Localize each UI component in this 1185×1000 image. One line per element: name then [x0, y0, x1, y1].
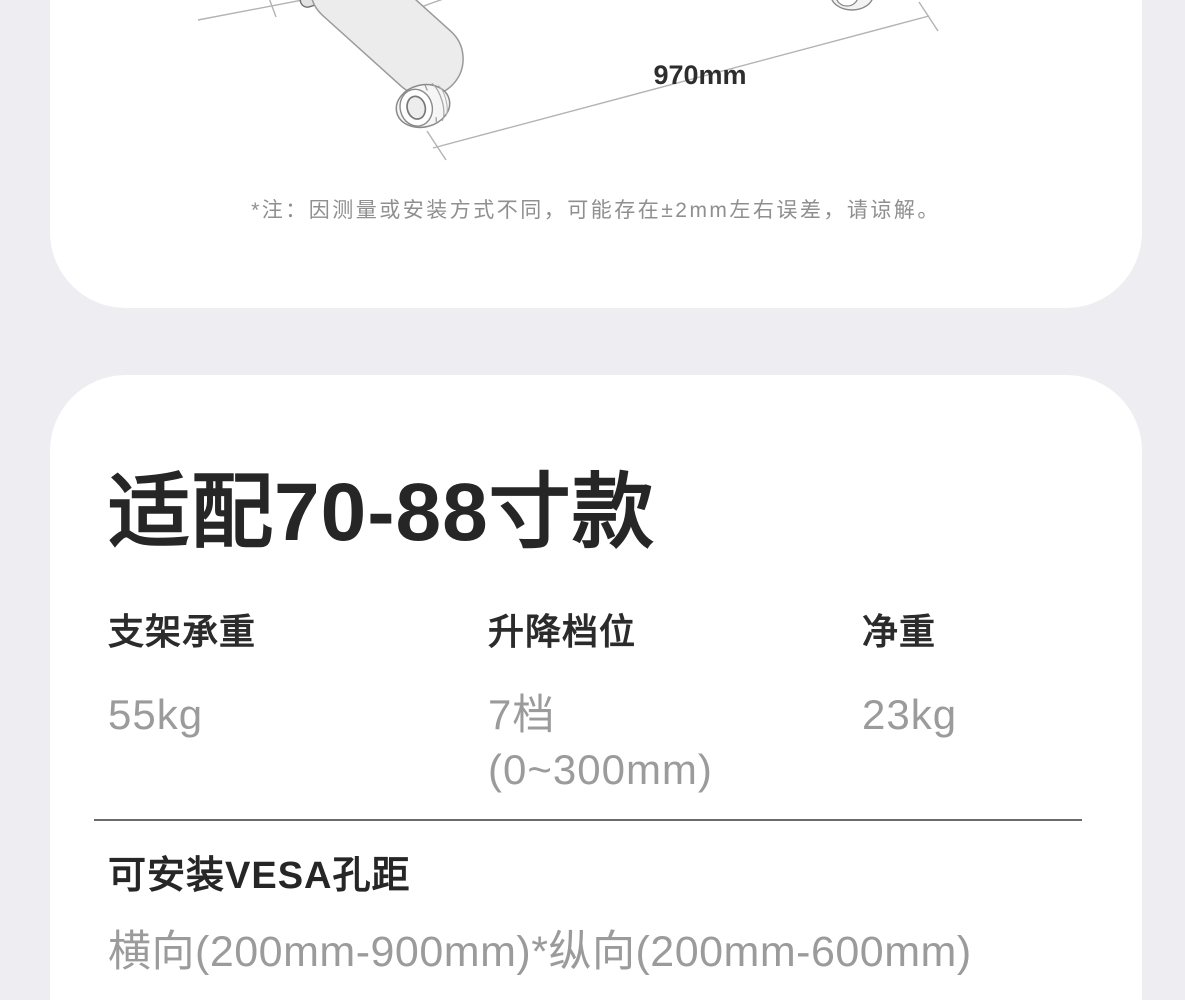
spec-label: 净重: [862, 610, 1142, 653]
vesa-section-value: 横向(200mm-900mm)*纵向(200mm-600mm): [108, 927, 1142, 979]
spec-item-net-weight: 净重 23kg: [862, 610, 1142, 797]
spec-value: 23kg: [862, 687, 1142, 742]
width-dimension-label: 970mm: [653, 60, 746, 90]
caster-wheel-partial-icon: [831, 0, 873, 10]
spec-label: 支架承重: [108, 610, 488, 653]
divider: [94, 819, 1082, 821]
product-detail-page: 970mm *注：因测量或安装方式不同，可能存在±2mm左右误差，请谅解。 适配…: [0, 0, 1185, 1000]
spec-value: 55kg: [108, 687, 488, 742]
vesa-section-label: 可安装VESA孔距: [108, 854, 1142, 900]
measurement-tolerance-note: *注：因测量或安装方式不同，可能存在±2mm左右误差，请谅解。: [50, 194, 1142, 224]
cart-dimension-illustration: 970mm: [150, 0, 1000, 170]
dimension-diagram-card: 970mm *注：因测量或安装方式不同，可能存在±2mm左右误差，请谅解。: [50, 0, 1142, 308]
spec-value: 7档 (0~300mm): [488, 687, 862, 797]
spec-item-height-levels: 升降档位 7档 (0~300mm): [488, 610, 862, 797]
spec-card: 适配70-88寸款 支架承重 55kg 升降档位 7档 (0~300mm) 净重…: [50, 375, 1142, 1000]
spec-label: 升降档位: [488, 610, 862, 653]
spec-item-load-capacity: 支架承重 55kg: [108, 610, 488, 797]
cart-leg: [295, 0, 478, 111]
spec-row: 支架承重 55kg 升降档位 7档 (0~300mm) 净重 23kg: [108, 610, 1142, 797]
spec-card-title: 适配70-88寸款: [50, 375, 1142, 554]
